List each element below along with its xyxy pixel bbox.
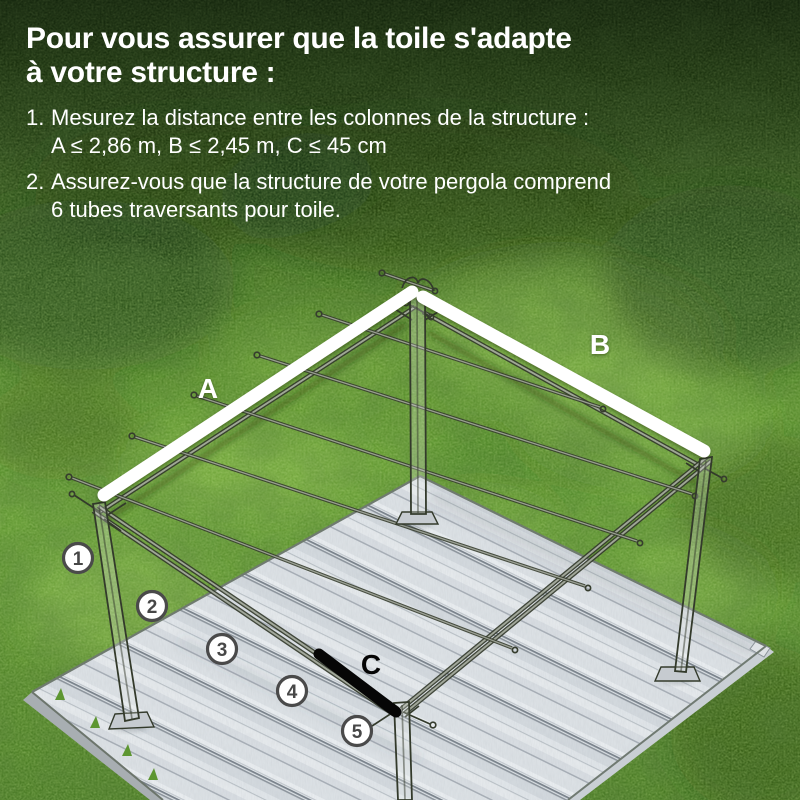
- page-title: Pour vous assurer que la toile s'adapte …: [26, 22, 784, 90]
- title-line-2: à votre structure :: [26, 56, 275, 89]
- label-c: C: [361, 649, 381, 680]
- item-number: 2.: [26, 168, 51, 223]
- svg-text:1: 1: [73, 549, 84, 570]
- instruction-item-1: 1. Mesurez la distance entre les colonne…: [26, 104, 784, 159]
- instructions: Pour vous assurer que la toile s'adapte …: [26, 22, 784, 223]
- tube-marker-5: 5: [343, 717, 372, 746]
- svg-text:2: 2: [147, 597, 158, 618]
- svg-text:4: 4: [287, 682, 298, 703]
- item-number: 1.: [26, 104, 51, 159]
- instruction-item-2: 2. Assurez-vous que la structure de votr…: [26, 168, 784, 223]
- item-text: Mesurez la distance entre les colonnes d…: [51, 104, 784, 159]
- tube-marker-1: 1: [64, 544, 93, 573]
- svg-text:3: 3: [217, 640, 228, 661]
- instruction-list: 1. Mesurez la distance entre les colonne…: [26, 104, 784, 223]
- title-line-1: Pour vous assurer que la toile s'adapte: [26, 22, 572, 55]
- label-a: A: [198, 373, 218, 404]
- item-text: Assurez-vous que la structure de votre p…: [51, 168, 784, 223]
- tube-marker-3: 3: [208, 635, 237, 664]
- label-b: B: [590, 329, 610, 360]
- tube-marker-4: 4: [278, 677, 307, 706]
- svg-text:5: 5: [352, 722, 363, 743]
- pergola-infographic: A B C 1 2 3 4 5 Pour vous assurer que la…: [0, 0, 800, 800]
- tube-marker-2: 2: [138, 592, 167, 621]
